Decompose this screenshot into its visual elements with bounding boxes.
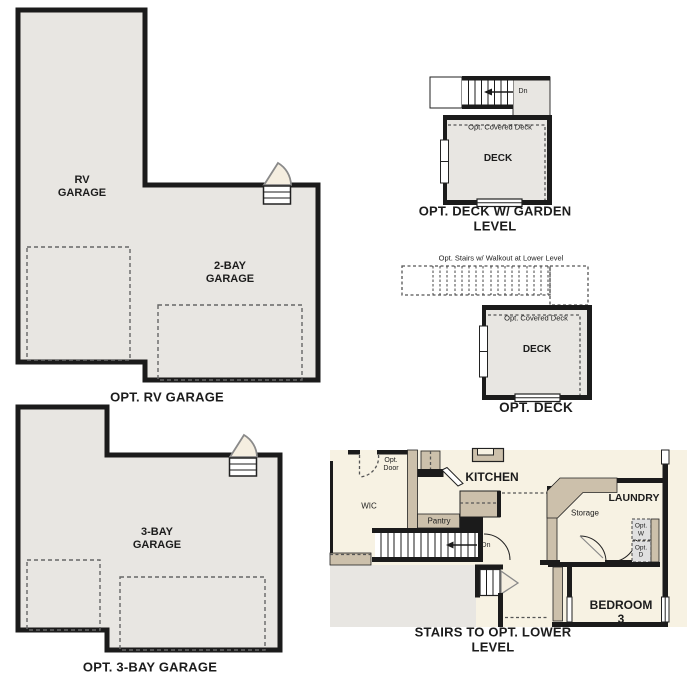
deck-garden-caption: OPT. DECK W/ GARDEN LEVEL: [399, 204, 591, 235]
stair-landing-left: [430, 77, 462, 108]
opt-landing-dashed-outline: [550, 266, 588, 305]
rv-garage-caption: OPT. RV GARAGE: [110, 389, 224, 404]
floorplan-options-sheet: RV GARAGE 2-BAY GARAGE OPT. RV GARAGE Dn…: [0, 0, 687, 687]
pantry-label: Pantry: [427, 516, 450, 525]
opt-washer-label: Opt. W: [635, 522, 647, 537]
stairs-down-label: Dn: [482, 542, 491, 550]
entry-stoop: [264, 186, 291, 204]
closet-door: [553, 567, 563, 621]
entry-stoop: [230, 458, 257, 476]
three-bay-garage-label: 3-BAY GARAGE: [133, 526, 181, 552]
storage-label: Storage: [571, 508, 599, 517]
kitchen-island: [460, 491, 500, 517]
stair-landing-upper: [513, 77, 550, 117]
opt-deck-caption: OPT. DECK: [499, 400, 573, 416]
deck-garden-level-plan: [430, 76, 552, 207]
wic-label: WIC: [361, 501, 377, 510]
covered-deck-label: Opt. Covered Deck: [468, 124, 532, 133]
bedroom3-label: BEDROOM 3: [588, 598, 654, 626]
two-bay-garage-label: 2-BAY GARAGE: [206, 260, 254, 286]
opt-stair-treads-dashed: [433, 266, 548, 295]
entry-door-swing: [230, 435, 257, 457]
opt-stairs-note: Opt. Stairs w/ Walkout at Lower Level: [439, 255, 564, 264]
bedroom-door-opening: [567, 597, 572, 622]
lower-level-caption: STAIRS TO OPT. LOWER LEVEL: [396, 625, 590, 656]
three-bay-caption: OPT. 3-BAY GARAGE: [83, 659, 217, 674]
deck-label: DECK: [523, 344, 551, 356]
stairs-down-label: Dn: [519, 88, 528, 96]
covered-deck-label: Opt. Covered Deck: [504, 315, 568, 324]
garage-steps: [480, 570, 500, 596]
garage-floor-area: [330, 565, 476, 627]
window: [662, 450, 670, 464]
opt-dryer-label: Opt. D: [635, 544, 647, 559]
opt-deck-plan: [402, 266, 592, 402]
kitchen-label: KITCHEN: [465, 470, 518, 484]
rv-garage-label: RV GARAGE: [58, 174, 106, 200]
entry-door-swing: [264, 163, 291, 185]
floorplan-linework: [0, 0, 687, 687]
laundry-label: LAUNDRY: [609, 492, 660, 504]
opt-door-label: Opt. Door: [383, 457, 398, 474]
deck-label: DECK: [484, 153, 512, 165]
